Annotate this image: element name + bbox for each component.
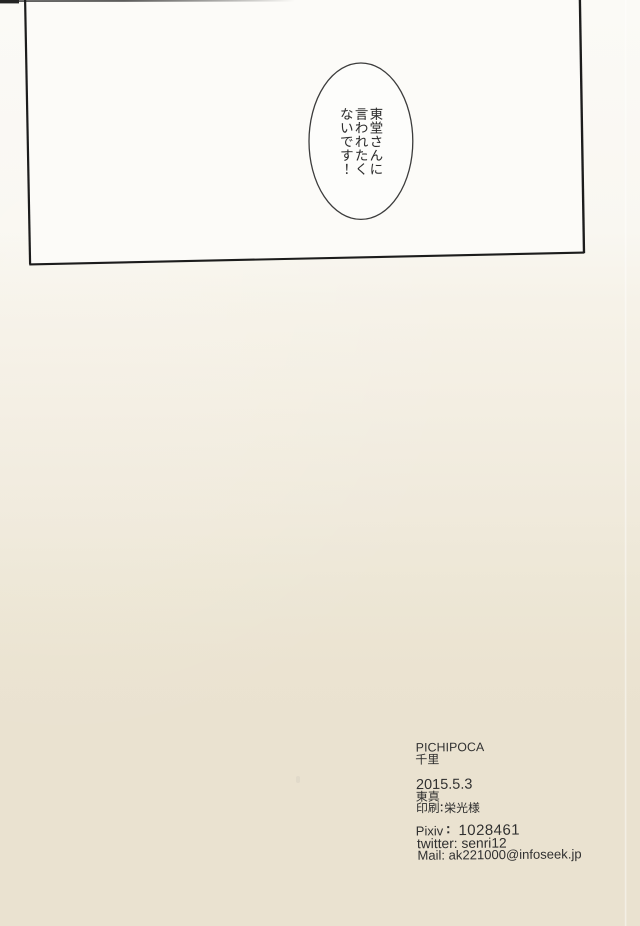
svg-text:PICHIPOCA: PICHIPOCA <box>416 740 485 755</box>
svg-text:Mail: ak221000@infoseek.jp: Mail: ak221000@infoseek.jp <box>417 846 581 862</box>
svg-text:2015.5.3: 2015.5.3 <box>416 777 473 793</box>
